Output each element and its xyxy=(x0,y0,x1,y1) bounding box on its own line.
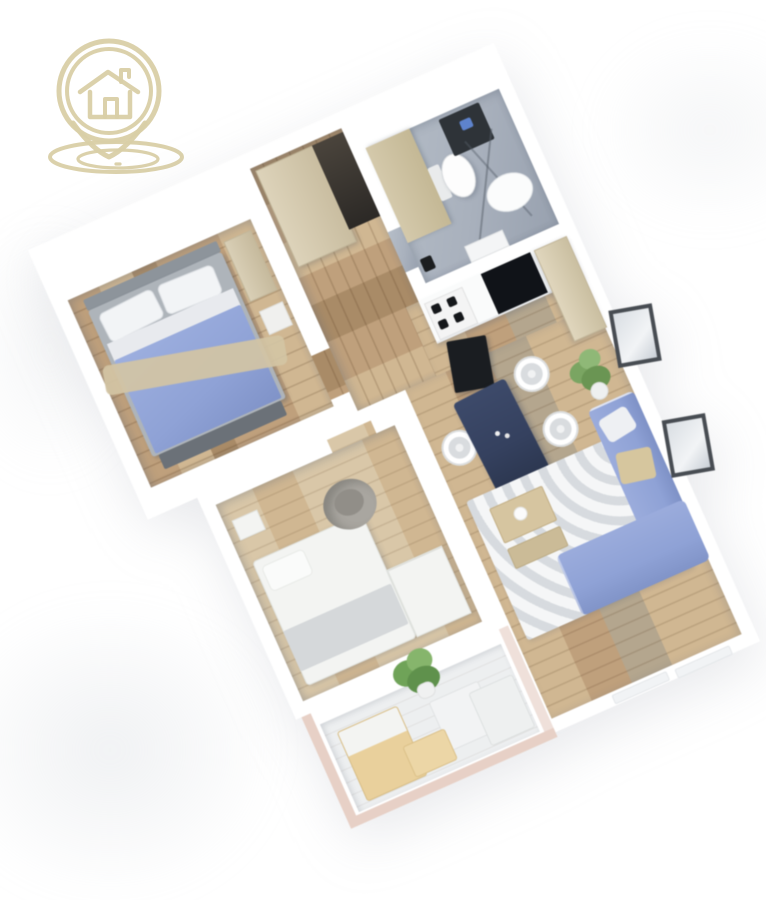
house-location-pin-icon xyxy=(36,26,204,182)
house-chimney xyxy=(121,70,129,82)
wall-frame xyxy=(662,413,715,478)
background-shadow-smudge xyxy=(590,30,766,230)
house-door xyxy=(105,99,117,117)
scene xyxy=(0,0,766,900)
house-body xyxy=(90,92,130,117)
wall-frame xyxy=(608,303,661,368)
